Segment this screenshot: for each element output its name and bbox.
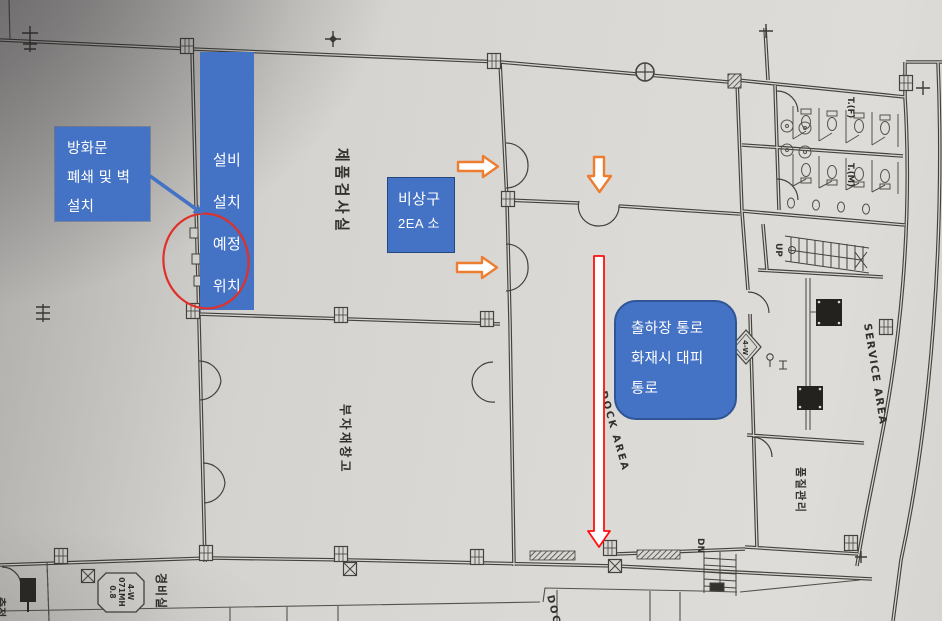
annotation-line: 통로	[631, 374, 735, 404]
dock-bumper-hatch	[637, 550, 680, 559]
stairs-up	[785, 236, 869, 273]
annotation-line: 설치	[213, 182, 241, 224]
dock-area-bottom-label: DOCK AREA	[544, 594, 575, 621]
stairs-down	[704, 551, 736, 596]
annotation-firedoor-box: 방화문 폐쇄 및 벽 설치	[55, 127, 150, 221]
stairs-down-label: DN	[695, 538, 705, 553]
room-label-guard: 경비실	[154, 573, 169, 609]
annotation-exit-box: 비상구 2EA 소	[387, 177, 455, 253]
service-area-label: SERVICE AREA	[861, 323, 889, 427]
equipment-units	[767, 299, 842, 410]
circle-cross-marker-icon	[636, 63, 654, 81]
edge-partial-label: 충전	[0, 597, 8, 617]
sinks	[781, 120, 811, 158]
grid-diamond-marker	[329, 35, 337, 43]
room-label-submaterial: 부자재창고	[338, 404, 353, 474]
grid-cross-markers	[22, 24, 930, 563]
annotation-line: 위치	[213, 266, 241, 308]
room-label-inspection: 제품검사실	[333, 148, 351, 235]
octagon-tag: 4-W 071MH 0.8	[98, 573, 144, 612]
hatched-column-icon	[728, 74, 741, 88]
guard-post	[20, 578, 36, 612]
room-label-quality: 품질관리	[794, 467, 808, 513]
floor-plan-drawing: 4-W 4-W 071MH 0.8 제품검사실 부자재창고 품질관리 경비실 충…	[0, 0, 942, 621]
dock-bumper-hatch	[530, 551, 575, 560]
toilet-male-label: T.(M)	[845, 163, 855, 187]
annotation-line: 방화문	[67, 135, 150, 164]
annotation-line: 설비	[213, 140, 241, 182]
walls-outline	[0, 28, 942, 621]
annotation-line: 출하장 통로	[631, 314, 735, 344]
stairs-up-label: UP	[773, 243, 783, 257]
floorplan-photo: 4-W 4-W 071MH 0.8 제품검사실 부자재창고 품질관리 경비실 충…	[0, 0, 942, 621]
urinals	[788, 198, 870, 214]
annotation-line: 2EA 소	[398, 211, 454, 237]
valve-icons	[767, 354, 787, 369]
toilet-female-label: T.(F)	[845, 97, 855, 118]
diamond-tag-label: 4-W	[741, 340, 749, 355]
annotation-equipment-box: 설비 설치 예정 위치	[200, 52, 254, 310]
octagon-label-2: 071MH	[117, 577, 126, 606]
annotation-line: 예정	[213, 224, 241, 266]
annotation-line: 폐쇄 및 벽	[67, 164, 150, 193]
restroom-fixtures	[781, 106, 898, 214]
octagon-label-1: 4-W	[126, 584, 135, 601]
annotation-line: 설치	[67, 193, 150, 222]
annotation-line: 비상구	[398, 189, 454, 211]
fence-dashed-line	[47, 562, 49, 621]
octagon-label-3: 0.8	[108, 585, 117, 598]
annotation-line: 화재시 대피	[631, 344, 735, 374]
annotation-evacuation-box: 출하장 통로 화재시 대피 통로	[614, 300, 737, 420]
